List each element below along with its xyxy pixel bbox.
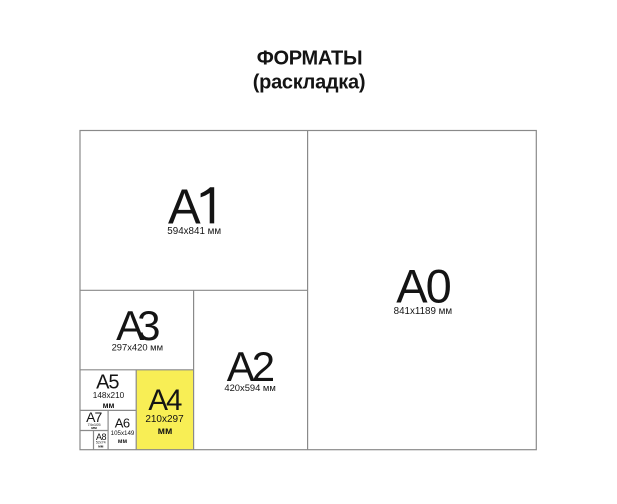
svg-text:297x420 мм: 297x420 мм [112, 341, 163, 352]
svg-text:A6: A6 [115, 415, 130, 430]
svg-text:420x594 мм: 420x594 мм [224, 382, 275, 393]
svg-text:210x297: 210x297 [145, 414, 184, 425]
svg-text:мм: мм [98, 444, 104, 448]
svg-text:мм: мм [158, 426, 173, 437]
svg-text:A4: A4 [148, 384, 182, 417]
svg-text:105x149: 105x149 [111, 430, 135, 437]
svg-text:ФОРМАТЫ: ФОРМАТЫ [257, 48, 363, 70]
svg-text:A0: A0 [396, 259, 450, 312]
svg-text:мм: мм [91, 426, 97, 430]
svg-text:841x1189 мм: 841x1189 мм [394, 306, 453, 317]
svg-text:148x210: 148x210 [93, 391, 125, 400]
svg-text:594x841 мм: 594x841 мм [167, 226, 221, 237]
svg-text:мм: мм [103, 401, 115, 410]
svg-text:(раскладка): (раскладка) [253, 72, 365, 94]
svg-text:мм: мм [118, 438, 128, 445]
